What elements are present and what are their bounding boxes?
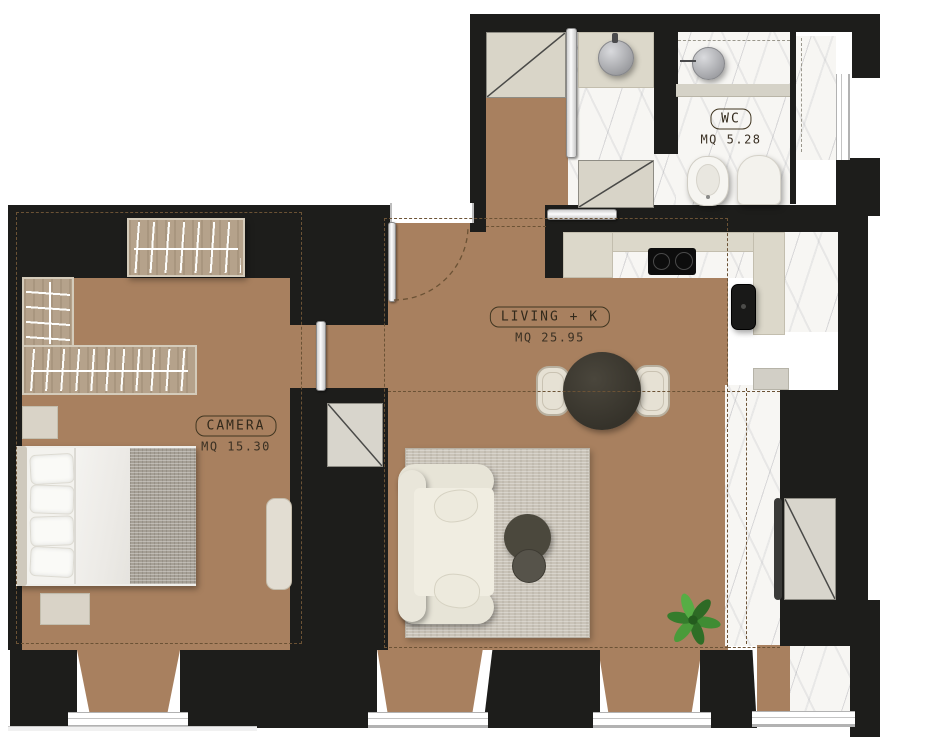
marble-strip-guide bbox=[746, 388, 747, 644]
shower-tray bbox=[578, 160, 654, 208]
wc-washbasin bbox=[692, 47, 725, 80]
wall bbox=[836, 158, 880, 216]
closet-unit bbox=[486, 32, 566, 98]
apartment-floor-plan: CAMERA MQ 15.30 LIVING + K MQ 25.95 WC M… bbox=[0, 0, 926, 743]
wall bbox=[180, 650, 377, 728]
wall bbox=[780, 390, 868, 500]
room-label-camera: CAMERA MQ 15.30 bbox=[196, 415, 277, 454]
shaft-diagonal bbox=[328, 404, 382, 466]
bidet bbox=[687, 156, 729, 206]
bidet-bowl bbox=[696, 164, 720, 196]
wall bbox=[790, 32, 796, 204]
living-guide-outline bbox=[384, 218, 728, 648]
living-window-3 bbox=[752, 711, 855, 727]
window-reveal-floor-3 bbox=[598, 648, 702, 713]
wall bbox=[838, 498, 868, 602]
closet-diagonal bbox=[487, 33, 565, 97]
shower-diagonal bbox=[579, 161, 653, 207]
floor-extension-bottom-right bbox=[757, 645, 791, 713]
kitchen-floor-right bbox=[785, 232, 838, 332]
wc-area: MQ 5.28 bbox=[700, 133, 761, 147]
bathroom-faucet-icon bbox=[612, 33, 618, 43]
wall bbox=[470, 14, 852, 32]
living-bottom-guide bbox=[728, 647, 780, 648]
wc-guide bbox=[678, 40, 790, 41]
bidet-drain bbox=[706, 195, 710, 199]
bathroom-wc-threshold bbox=[654, 154, 676, 205]
bathroom-washbasin bbox=[598, 40, 634, 76]
camera-label: CAMERA bbox=[196, 416, 277, 437]
wall bbox=[780, 600, 850, 646]
wc-window bbox=[836, 74, 850, 160]
kitchen-sill bbox=[753, 368, 789, 390]
sill-line bbox=[8, 726, 257, 731]
wc-shelf bbox=[676, 84, 790, 97]
wall bbox=[10, 650, 77, 728]
sink-faucet-icon bbox=[741, 304, 746, 309]
wall bbox=[654, 32, 678, 154]
camera-area: MQ 15.30 bbox=[196, 440, 277, 454]
bedroom-sliding-door bbox=[316, 321, 326, 391]
living-window-2 bbox=[593, 712, 711, 728]
window-reveal-floor-2 bbox=[377, 648, 483, 713]
wc-niche-floor bbox=[796, 36, 836, 160]
door-passage-floor bbox=[290, 323, 388, 389]
technical-shaft bbox=[327, 403, 383, 467]
niche-guide bbox=[801, 38, 802, 152]
wc-label: WC bbox=[710, 109, 752, 130]
living-area: MQ 25.95 bbox=[490, 331, 610, 345]
wc-faucet-icon bbox=[680, 60, 696, 62]
living-center-guide bbox=[388, 391, 780, 392]
room-label-living: LIVING + K MQ 25.95 bbox=[490, 306, 610, 345]
reveal-diagonal bbox=[785, 499, 835, 599]
window-reveal-floor-1 bbox=[77, 650, 180, 712]
wall bbox=[470, 32, 486, 232]
living-window-1 bbox=[368, 712, 488, 728]
side-window-reveal bbox=[784, 498, 836, 600]
wall bbox=[838, 216, 868, 390]
toilet bbox=[737, 155, 781, 205]
bathroom-sliding-door bbox=[566, 28, 577, 158]
corridor-guide bbox=[486, 226, 546, 227]
wall bbox=[295, 205, 390, 232]
wall bbox=[483, 650, 600, 728]
window-reveal-side bbox=[774, 498, 782, 600]
kitchen-counter-right bbox=[753, 232, 785, 335]
wall bbox=[852, 14, 880, 78]
wall bbox=[290, 232, 388, 325]
room-label-wc: WC MQ 5.28 bbox=[700, 108, 761, 147]
kitchen-sink bbox=[731, 284, 756, 330]
marble-bottom-right bbox=[790, 645, 850, 713]
living-label: LIVING + K bbox=[490, 307, 610, 328]
